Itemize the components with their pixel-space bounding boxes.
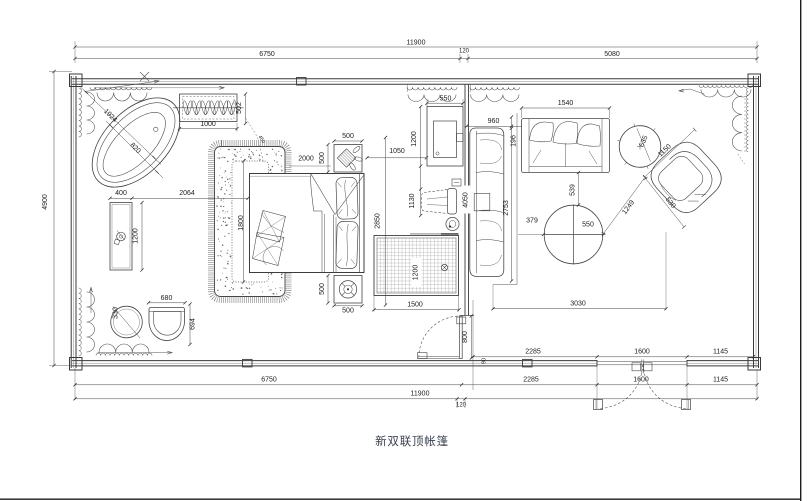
svg-text:11900: 11900 (407, 40, 426, 47)
svg-text:90: 90 (482, 358, 488, 364)
svg-text:1500: 1500 (407, 302, 423, 309)
svg-text:5080: 5080 (604, 51, 620, 58)
svg-text:539: 539 (570, 184, 577, 196)
svg-text:1145: 1145 (713, 377, 728, 384)
svg-text:1540: 1540 (558, 100, 574, 107)
svg-text:500: 500 (342, 133, 354, 140)
svg-text:1200: 1200 (133, 228, 140, 244)
svg-text:800: 800 (462, 331, 469, 343)
svg-text:2285: 2285 (523, 377, 539, 384)
svg-text:680: 680 (161, 295, 173, 302)
svg-text:960: 960 (488, 118, 500, 125)
svg-text:2753: 2753 (503, 200, 510, 216)
svg-text:694: 694 (190, 318, 197, 330)
svg-text:502: 502 (236, 102, 243, 114)
svg-text:550: 550 (582, 222, 594, 229)
svg-text:1130: 1130 (409, 193, 416, 208)
svg-text:2064: 2064 (179, 190, 195, 197)
svg-text:1145: 1145 (713, 349, 728, 356)
svg-text:1050: 1050 (389, 148, 405, 155)
svg-text:500: 500 (342, 308, 354, 315)
svg-text:1800: 1800 (238, 215, 245, 231)
svg-text:4900: 4900 (42, 194, 49, 210)
svg-text:1000: 1000 (200, 121, 216, 128)
svg-text:120: 120 (459, 49, 470, 55)
svg-text:500: 500 (319, 283, 326, 295)
svg-text:379: 379 (526, 218, 538, 225)
svg-text:196: 196 (511, 135, 518, 147)
svg-text:6750: 6750 (259, 51, 275, 58)
svg-text:11900: 11900 (411, 391, 430, 398)
svg-text:400: 400 (115, 190, 127, 197)
svg-text:新双联顶帐篷: 新双联顶帐篷 (375, 434, 449, 448)
svg-text:2285: 2285 (525, 349, 541, 356)
svg-text:1200: 1200 (411, 131, 418, 147)
svg-text:2000: 2000 (298, 156, 314, 163)
svg-text:500: 500 (319, 152, 326, 164)
svg-text:3030: 3030 (570, 301, 586, 308)
svg-text:1200: 1200 (413, 265, 420, 281)
svg-text:330: 330 (113, 307, 120, 319)
svg-text:4050: 4050 (463, 192, 470, 208)
svg-text:1600: 1600 (634, 349, 650, 356)
svg-text:6750: 6750 (261, 377, 277, 384)
svg-text:2850: 2850 (375, 213, 382, 229)
